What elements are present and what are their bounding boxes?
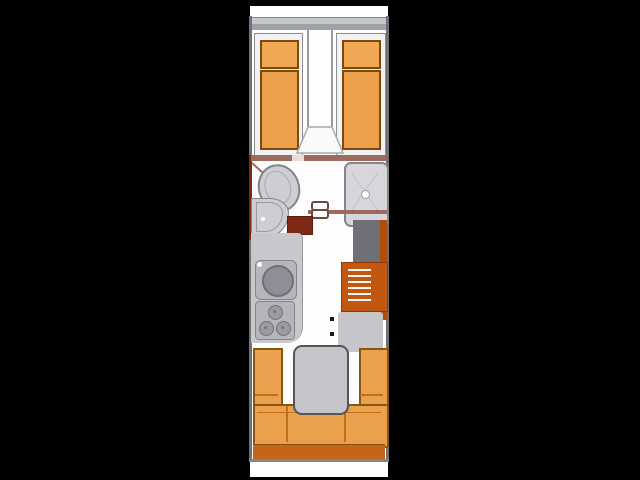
burner [268, 305, 283, 320]
step-marker-dot [330, 332, 334, 336]
sink-bowl [262, 265, 294, 297]
step-marker-dot [330, 317, 334, 321]
shower-tray [344, 162, 389, 227]
center-aisle-step [248, 30, 390, 160]
bedroom-washroom-wall [251, 155, 387, 161]
heater-vent-slats [348, 269, 371, 305]
wardrobe [353, 220, 380, 262]
front-cap-strip [250, 6, 388, 17]
washbasin-drain [261, 217, 265, 221]
washroom-door-opening [292, 155, 304, 161]
lounge-table [293, 345, 349, 415]
washbasin-rim-line [256, 202, 283, 232]
burner [276, 321, 291, 336]
cushion-seam [360, 394, 383, 396]
cushion-seam [255, 394, 278, 396]
heater-unit [341, 262, 388, 312]
shower-drain [361, 190, 370, 199]
three-burner-hob [255, 301, 295, 340]
screenshot-canvas [0, 0, 640, 480]
front-wall-band [250, 17, 388, 31]
rear-cap-strip [250, 462, 388, 477]
faucet-dot [257, 262, 262, 267]
door-handle-part [311, 209, 329, 219]
burner [259, 321, 274, 336]
caravan-floorplan [248, 0, 390, 480]
kitchen-sink [255, 260, 297, 300]
